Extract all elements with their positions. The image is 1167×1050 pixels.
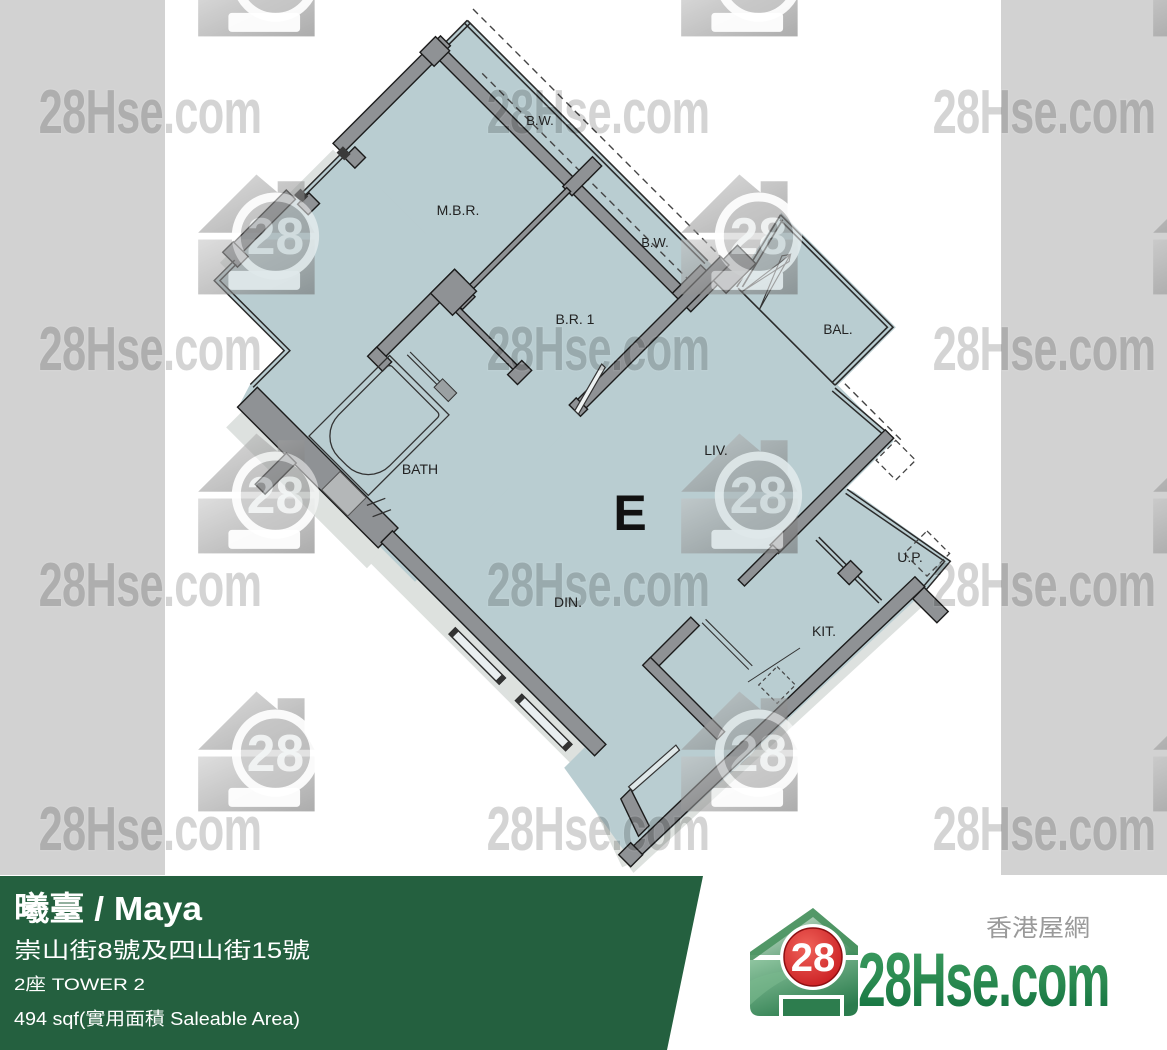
svg-text:U.P.: U.P. — [897, 549, 922, 565]
svg-text:28Hse.com: 28Hse.com — [487, 79, 710, 147]
svg-text:E: E — [613, 485, 646, 541]
svg-text:28Hse.com: 28Hse.com — [39, 552, 262, 620]
svg-text:28Hse.com: 28Hse.com — [933, 79, 1156, 147]
svg-text:28: 28 — [730, 724, 787, 782]
svg-text:BATH: BATH — [402, 461, 438, 477]
svg-text:494 sqf(實用面積 Saleable Area): 494 sqf(實用面積 Saleable Area) — [14, 1009, 300, 1029]
svg-text:28Hse.com: 28Hse.com — [933, 316, 1156, 384]
svg-text:LIV.: LIV. — [704, 442, 728, 458]
svg-text:2座 TOWER 2: 2座 TOWER 2 — [14, 975, 145, 994]
svg-text:28Hse.com: 28Hse.com — [933, 796, 1156, 864]
svg-text:曦臺 / Maya: 曦臺 / Maya — [14, 890, 203, 927]
svg-text:28: 28 — [247, 207, 304, 265]
svg-text:KIT.: KIT. — [812, 623, 836, 639]
svg-text:崇山街8號及四山街15號: 崇山街8號及四山街15號 — [14, 938, 310, 963]
svg-text:B.W.: B.W. — [526, 113, 553, 128]
svg-text:28Hse.com: 28Hse.com — [858, 937, 1109, 1022]
svg-text:28: 28 — [247, 724, 304, 782]
svg-text:M.B.R.: M.B.R. — [437, 202, 480, 218]
svg-text:BAL.: BAL. — [823, 322, 852, 337]
svg-text:28: 28 — [247, 0, 304, 7]
svg-text:B.R. 1: B.R. 1 — [556, 311, 595, 327]
svg-text:28: 28 — [730, 207, 787, 265]
svg-text:28Hse.com: 28Hse.com — [487, 796, 710, 864]
svg-text:28Hse.com: 28Hse.com — [39, 316, 262, 384]
svg-text:28: 28 — [730, 466, 787, 524]
svg-text:B.W.: B.W. — [641, 235, 668, 250]
svg-text:28: 28 — [791, 936, 836, 980]
svg-text:28Hse.com: 28Hse.com — [39, 79, 262, 147]
svg-text:28Hse.com: 28Hse.com — [933, 552, 1156, 620]
svg-text:DIN.: DIN. — [554, 594, 582, 610]
svg-text:香港屋網: 香港屋網 — [986, 915, 1090, 942]
svg-text:28: 28 — [247, 466, 304, 524]
svg-text:28Hse.com: 28Hse.com — [487, 552, 710, 620]
svg-text:28: 28 — [730, 0, 787, 7]
svg-text:28Hse.com: 28Hse.com — [487, 316, 710, 384]
